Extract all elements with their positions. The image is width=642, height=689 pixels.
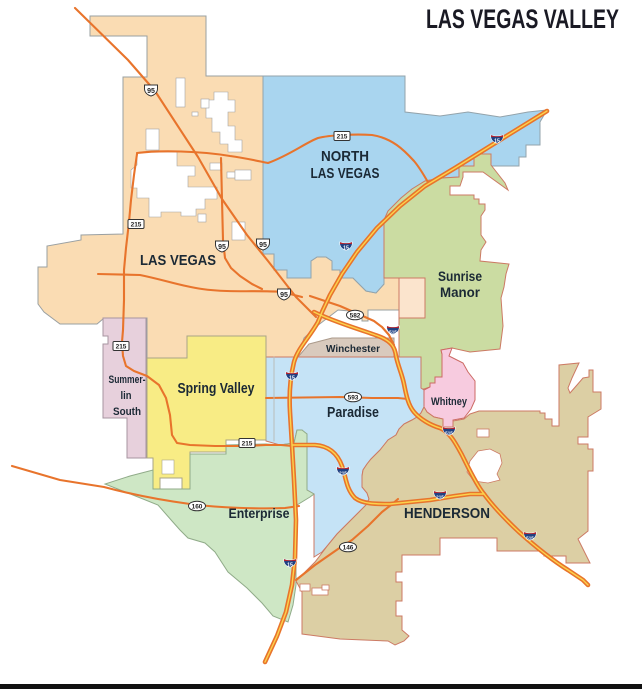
svg-text:160: 160 — [192, 503, 203, 510]
svg-text:Sunrise: Sunrise — [438, 268, 482, 284]
svg-text:LAS VEGAS: LAS VEGAS — [140, 252, 216, 269]
svg-text:215: 215 — [242, 441, 253, 448]
svg-text:95: 95 — [280, 292, 288, 299]
svg-text:15: 15 — [289, 375, 295, 381]
svg-text:215: 215 — [436, 494, 444, 499]
svg-text:215: 215 — [339, 470, 347, 475]
svg-text:Winchester: Winchester — [326, 343, 380, 355]
svg-text:NORTH: NORTH — [321, 148, 369, 165]
svg-text:LAS VEGAS VALLEY: LAS VEGAS VALLEY — [426, 4, 619, 34]
svg-text:515: 515 — [526, 535, 534, 540]
svg-text:15: 15 — [494, 138, 500, 144]
svg-text:lin: lin — [121, 390, 132, 402]
svg-text:Whitney: Whitney — [431, 396, 468, 408]
svg-text:215: 215 — [131, 222, 142, 229]
svg-text:593: 593 — [348, 394, 359, 401]
svg-text:Enterprise: Enterprise — [229, 505, 290, 521]
svg-text:Paradise: Paradise — [327, 404, 379, 421]
svg-text:15: 15 — [343, 245, 349, 251]
svg-text:95: 95 — [218, 244, 226, 251]
svg-text:582: 582 — [350, 312, 361, 319]
svg-text:South: South — [113, 406, 141, 418]
svg-text:515: 515 — [445, 430, 453, 435]
svg-text:95: 95 — [147, 88, 155, 95]
svg-text:15: 15 — [287, 562, 293, 568]
svg-text:HENDERSON: HENDERSON — [404, 505, 490, 522]
svg-text:215: 215 — [337, 134, 348, 141]
svg-text:Spring Valley: Spring Valley — [178, 380, 256, 397]
svg-text:Summer-: Summer- — [109, 374, 146, 386]
svg-text:215: 215 — [116, 344, 127, 351]
svg-text:146: 146 — [343, 544, 354, 551]
svg-text:LAS VEGAS: LAS VEGAS — [311, 165, 380, 182]
svg-text:Manor: Manor — [440, 284, 481, 300]
svg-text:515: 515 — [389, 329, 397, 334]
svg-text:95: 95 — [259, 242, 267, 249]
